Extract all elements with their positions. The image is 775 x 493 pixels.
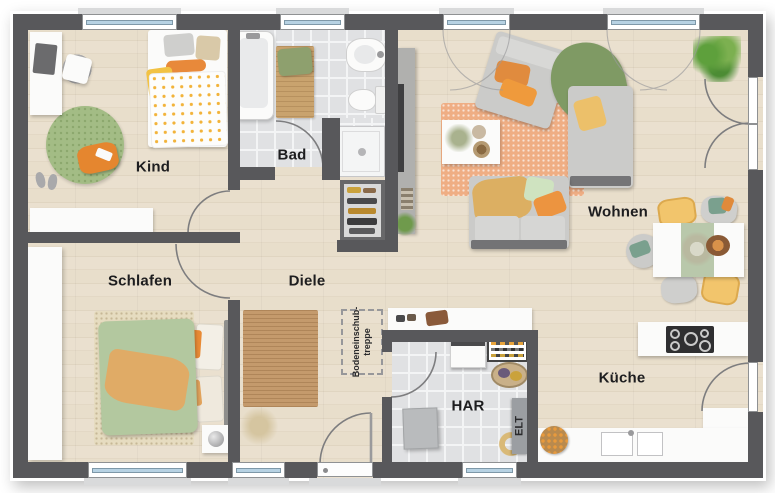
wall-bad-bottom <box>228 167 275 180</box>
schlafen-door-arc <box>176 244 230 298</box>
wall-junction <box>228 232 240 243</box>
wall <box>345 14 443 30</box>
door-handle <box>323 468 328 473</box>
room-label-kueche: Küche <box>599 370 646 387</box>
wall <box>748 170 763 362</box>
kitchen-terrace-door <box>748 362 758 412</box>
curtain-arc-4 <box>640 30 700 90</box>
french-door-upper-arc <box>705 79 750 124</box>
window-sill <box>84 478 191 485</box>
window-har <box>462 462 517 478</box>
wall-har-left-b <box>382 397 392 462</box>
kind-door-arc <box>188 191 230 233</box>
wall <box>510 14 607 30</box>
window-sill <box>228 478 289 485</box>
window-diele <box>232 462 285 478</box>
wall-closet-bottom <box>337 240 398 252</box>
room-label-schlafen: Schlafen <box>108 273 172 290</box>
wall <box>177 14 280 30</box>
room-label-bad: Bad <box>278 147 307 164</box>
wall <box>748 14 763 77</box>
entrance-door <box>317 462 373 477</box>
wall-har-left-a <box>382 342 392 352</box>
curtain-arc-2 <box>450 30 510 90</box>
wall <box>517 462 763 478</box>
wall-kind-bad <box>228 30 240 190</box>
room-label-kind: Kind <box>136 159 170 176</box>
wall-schlafen-diele <box>228 300 240 462</box>
curtain-arc-1 <box>443 30 503 90</box>
window-wohnen-1 <box>443 14 510 30</box>
kitchen-door-arc <box>702 363 750 411</box>
wall-bad-wohnen <box>385 30 398 252</box>
wall <box>187 462 232 478</box>
french-door-lower-arc <box>705 123 750 168</box>
wall <box>748 412 763 478</box>
wall <box>13 14 28 478</box>
window-sill <box>458 478 521 485</box>
room-label-wohnen: Wohnen <box>588 204 648 221</box>
room-label-har: HAR <box>451 398 484 415</box>
window-bad <box>280 14 345 30</box>
curtain-arc-3 <box>607 30 667 90</box>
window-wohnen-2 <box>607 14 700 30</box>
wall-kind-schlafen <box>13 232 228 243</box>
window-kind <box>82 14 177 30</box>
wall <box>373 462 462 478</box>
wall-har-kueche <box>527 342 538 462</box>
entrance-door-arc <box>320 413 371 464</box>
har-door-arc <box>391 352 436 397</box>
wall-har-top <box>382 330 538 342</box>
french-door-wohnen <box>748 77 758 170</box>
room-label-diele: Diele <box>289 273 326 290</box>
wall-bad-internal <box>322 118 340 180</box>
window-schlafen <box>88 462 187 478</box>
wall <box>285 462 317 478</box>
french-door-seam <box>749 123 757 125</box>
entrance-step <box>309 478 381 486</box>
floor-plan: Bodeneinschub- treppe <box>0 0 775 493</box>
